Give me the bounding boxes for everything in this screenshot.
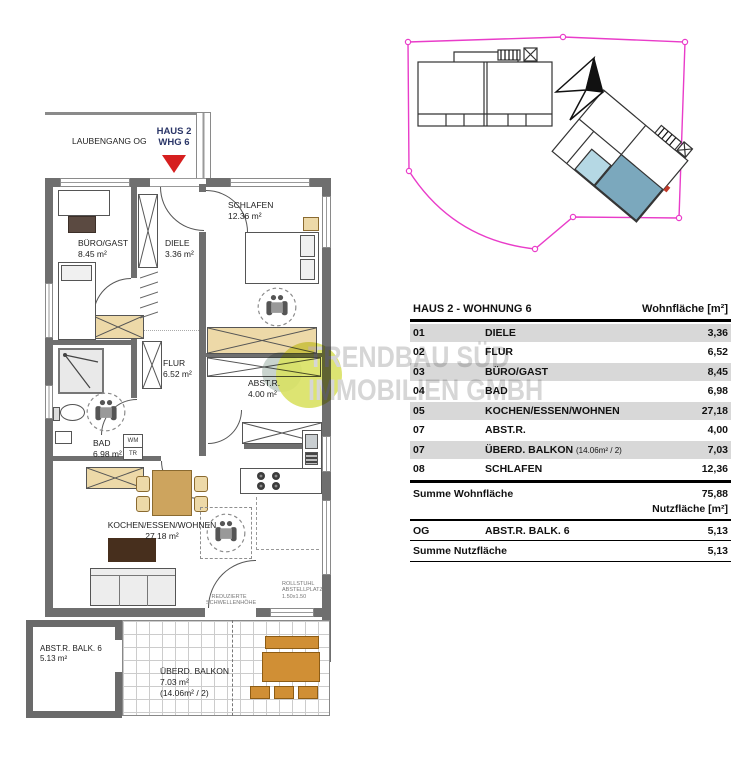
balcony-split-line	[232, 620, 233, 716]
room-label-wohnen: KOCHEN/ESSEN/WOHNEN 27.18 m²	[82, 520, 242, 542]
row-name: FLUR	[485, 346, 670, 358]
room-area: 5.13 m²	[40, 654, 102, 664]
balcony-table	[262, 652, 320, 682]
room-area: 8.45 m²	[78, 249, 128, 260]
washer-dryer-closet: WM TR	[123, 434, 143, 460]
wheelchair-space-line2: ABSTELLPLATZ	[282, 587, 326, 593]
window	[270, 608, 314, 617]
window	[60, 178, 130, 187]
sum-label: Summe Nutzfläche	[413, 545, 670, 557]
wheelchair-space-note: ROLLSTUHL ABSTELLPLATZ 1.50x1.50	[282, 581, 326, 600]
door-arc-entrance	[160, 187, 204, 231]
pillow	[300, 235, 315, 257]
table-row: 03 BÜRO/GAST 8,45	[410, 363, 731, 381]
chair	[136, 496, 150, 512]
window	[322, 436, 331, 472]
room-name: KOCHEN/ESSEN/WOHNEN	[82, 520, 242, 531]
row-nr: 07	[413, 424, 485, 436]
room-label-abstellraum-balkon: ABST.R. BALK. 6 5.13 m²	[40, 644, 102, 665]
room-area: 6.98 m²	[93, 449, 122, 460]
entrance-opening	[150, 178, 206, 187]
table-unit-header: Nutzfläche [m²]	[410, 503, 731, 521]
room-area: 4.00 m²	[248, 389, 280, 400]
table-row: 05 KOCHEN/ESSEN/WOHNEN 27,18	[410, 402, 731, 420]
row-nr: 02	[413, 346, 485, 358]
laubengang-railing	[45, 112, 197, 115]
room-name: BAD	[93, 438, 122, 449]
wall	[53, 340, 131, 345]
floorplan-document: LAUBENGANG OG HAUS 2 WHG 6	[0, 0, 732, 757]
window	[322, 500, 331, 575]
room-label-flur: FLUR 6.52 m²	[163, 358, 192, 380]
shelf	[208, 358, 320, 376]
wohnflaeche-table: HAUS 2 - WOHNUNG 6 Wohnfläche [m²] 01 DI…	[410, 301, 731, 504]
closet	[139, 195, 157, 267]
window	[196, 112, 211, 182]
nutzflaeche-table: Nutzfläche [m²] OG ABST.R. BALK. 6 5,13 …	[410, 503, 731, 562]
row-nr: 03	[413, 366, 485, 378]
chair	[194, 476, 208, 492]
row-value: 3,36	[670, 327, 728, 339]
row-value: 27,18	[670, 405, 728, 417]
door-arc-buero	[93, 278, 131, 316]
wheelchair-space-line3: 1.50x1.50	[282, 594, 326, 600]
row-name-note: (14.06m² / 2)	[576, 446, 622, 455]
table-row: 07 ABST.R. 4,00	[410, 422, 731, 440]
wardrobe	[93, 316, 143, 338]
balcony-chair	[250, 686, 270, 699]
laubengang-label: LAUBENGANG OG	[72, 136, 147, 147]
row-value: 6,52	[670, 346, 728, 358]
room-area-note: (14.06m² / 2)	[160, 688, 229, 699]
threshold-note: REDUZIERTE SCHWELLENHÖHE	[206, 594, 252, 607]
sum-value: 5,13	[670, 545, 728, 557]
row-value: 5,13	[670, 525, 728, 537]
sofa-divider	[147, 575, 148, 606]
table-sum-row: Summe Nutzfläche 5,13	[410, 541, 731, 562]
table-row: 02 FLUR 6,52	[410, 344, 731, 362]
wardrobe	[87, 468, 143, 488]
room-label-diele: DIELE 3.36 m²	[165, 238, 194, 260]
table-row: OG ABST.R. BALK. 6 5,13	[410, 521, 731, 541]
nightstand	[303, 217, 319, 231]
balcony-chair	[298, 686, 318, 699]
wheelchair-icon	[86, 392, 126, 432]
row-nr: 08	[413, 463, 485, 475]
row-name: BAD	[485, 385, 670, 397]
table-row: 01 DIELE 3,36	[410, 324, 731, 342]
row-name: ABST.R. BALK. 6	[485, 525, 670, 537]
window	[45, 283, 53, 338]
row-value: 8,45	[670, 366, 728, 378]
wall	[206, 353, 322, 357]
dining-table	[152, 470, 192, 516]
pillow	[61, 265, 92, 281]
room-area: 6.52 m²	[163, 369, 192, 380]
row-value: 7,03	[670, 444, 728, 456]
table-unit-header: Wohnfläche [m²]	[642, 303, 728, 315]
wheelchair-icon	[257, 287, 297, 327]
balcony-bench	[265, 636, 319, 649]
building-2	[552, 81, 698, 225]
table-row: 07 ÜBERD. BALKON (14.06m² / 2) 7,03	[410, 441, 731, 459]
room-name: DIELE	[165, 238, 194, 249]
oven	[305, 452, 318, 465]
unit-marker: HAUS 2 WHG 6	[150, 127, 198, 149]
dryer-label: TR	[124, 448, 142, 461]
sofa	[90, 568, 176, 606]
desk	[58, 190, 110, 216]
room-area: 7.03 m²	[160, 677, 229, 688]
storage-room-balcony	[26, 620, 122, 718]
row-name: BÜRO/GAST	[485, 366, 670, 378]
room-name: BÜRO/GAST	[78, 238, 128, 249]
unit-marker-line2: WHG 6	[150, 138, 198, 149]
row-name: KOCHEN/ESSEN/WOHNEN	[485, 405, 670, 417]
row-name: ÜBERD. BALKON (14.06m² / 2)	[485, 444, 670, 456]
room-area: 12.36 m²	[228, 211, 273, 222]
room-name: ABST.R. BALK. 6	[40, 644, 102, 654]
row-nr: 04	[413, 385, 485, 397]
window	[45, 385, 53, 419]
chair	[136, 476, 150, 492]
row-nr: OG	[413, 525, 485, 537]
room-label-buero: BÜRO/GAST 8.45 m²	[78, 238, 128, 260]
sofa-back-line	[91, 575, 175, 576]
window	[322, 196, 331, 248]
wardrobe	[208, 328, 316, 353]
toilet-tank	[53, 407, 60, 421]
sink-bowl	[305, 434, 318, 449]
row-nr: 05	[413, 405, 485, 417]
window	[230, 178, 310, 187]
building-1	[418, 48, 552, 126]
door-opening	[115, 640, 122, 672]
table-title: HAUS 2 - WOHNUNG 6	[413, 303, 532, 315]
room-name: SCHLAFEN	[228, 200, 273, 211]
room-separator-dotted	[143, 330, 199, 331]
sink	[55, 431, 72, 444]
table-header: HAUS 2 - WOHNUNG 6 Wohnfläche [m²]	[410, 301, 731, 322]
room-name: ÜBERD. BALKON	[160, 666, 229, 677]
kitchen-dashed-zone	[256, 497, 319, 550]
sum-value: 75,88	[670, 488, 728, 500]
table-row: 04 BAD 6,98	[410, 383, 731, 401]
row-name-main: ÜBERD. BALKON	[485, 444, 573, 456]
row-value: 4,00	[670, 424, 728, 436]
shower-lines	[58, 348, 104, 394]
row-name: SCHLAFEN	[485, 463, 670, 475]
desk-chair	[68, 216, 96, 233]
wall	[45, 608, 205, 617]
door-arc-abstellraum	[208, 410, 242, 444]
room-name: FLUR	[163, 358, 192, 369]
row-nr: 01	[413, 327, 485, 339]
shaft-hatching	[140, 270, 158, 326]
table-row: 08 SCHLAFEN 12,36	[410, 461, 731, 479]
room-area: 3.36 m²	[165, 249, 194, 260]
wall	[131, 184, 137, 278]
room-label-schlafen: SCHLAFEN 12.36 m²	[228, 200, 273, 222]
threshold-line2: SCHWELLENHÖHE	[206, 600, 252, 606]
sum-label: Summe Wohnfläche	[413, 488, 670, 500]
balcony-chair	[274, 686, 294, 699]
pillow	[300, 259, 315, 280]
stove-burners	[252, 470, 286, 492]
sofa-divider	[119, 575, 120, 606]
room-name: ABST.R.	[248, 378, 280, 389]
row-name: ABST.R.	[485, 424, 670, 436]
room-label-balkon: ÜBERD. BALKON 7.03 m² (14.06m² / 2)	[160, 666, 229, 699]
entrance-arrow-icon	[162, 155, 186, 173]
closet	[143, 342, 161, 388]
row-name: DIELE	[485, 327, 670, 339]
toilet	[60, 404, 85, 421]
room-label-bad: BAD 6.98 m²	[93, 438, 122, 460]
row-value: 6,98	[670, 385, 728, 397]
row-nr: 07	[413, 444, 485, 456]
row-value: 12,36	[670, 463, 728, 475]
table-sum-row: Summe Wohnfläche 75,88	[410, 480, 731, 504]
room-area: 27.18 m²	[82, 531, 242, 542]
washer-label: WM	[124, 435, 142, 448]
room-label-abstellraum: ABST.R. 4.00 m²	[248, 378, 280, 400]
wall	[199, 232, 206, 456]
site-plan	[398, 28, 732, 260]
